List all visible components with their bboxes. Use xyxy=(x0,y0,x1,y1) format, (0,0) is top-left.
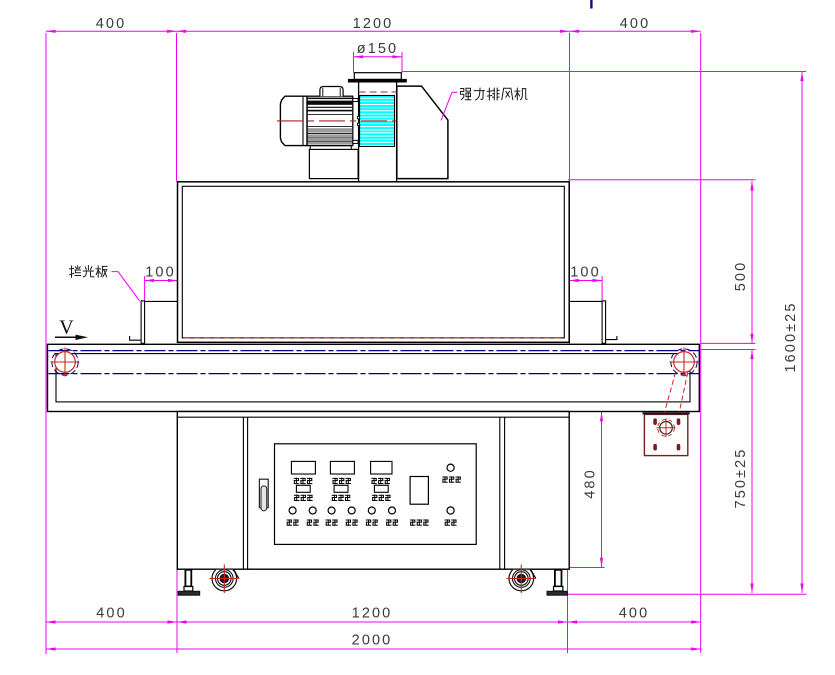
svg-text:ø150: ø150 xyxy=(357,41,398,57)
svg-text:2000: 2000 xyxy=(352,633,393,649)
svg-text:V: V xyxy=(59,317,74,339)
svg-text:100: 100 xyxy=(570,265,601,281)
svg-text:100: 100 xyxy=(145,265,176,281)
svg-text:500: 500 xyxy=(733,261,749,292)
svg-text:1200: 1200 xyxy=(352,606,393,622)
svg-text:1200: 1200 xyxy=(353,16,394,32)
svg-text:750±25: 750±25 xyxy=(733,448,749,509)
svg-text:400: 400 xyxy=(620,16,651,32)
svg-text:400: 400 xyxy=(96,606,127,622)
svg-text:400: 400 xyxy=(619,606,650,622)
svg-text:480: 480 xyxy=(582,468,598,499)
svg-text:400: 400 xyxy=(96,16,127,32)
svg-text:1600±25: 1600±25 xyxy=(783,301,799,372)
